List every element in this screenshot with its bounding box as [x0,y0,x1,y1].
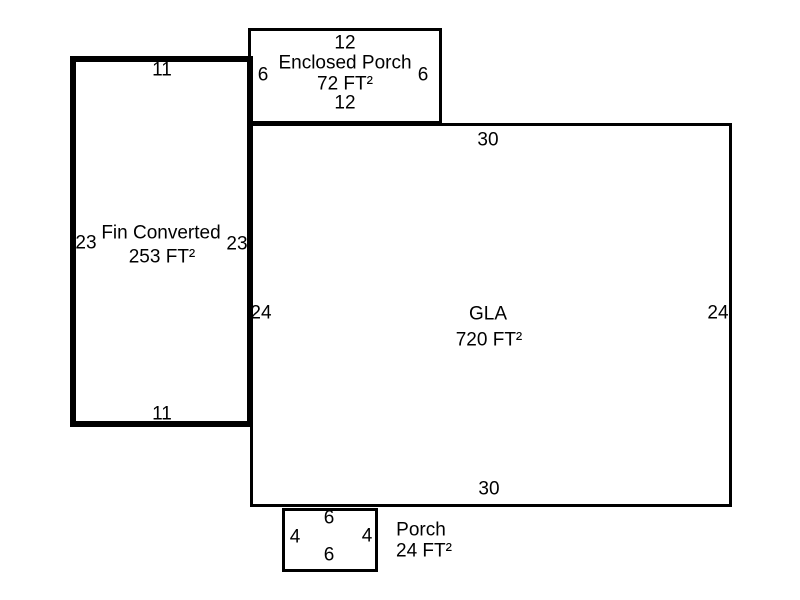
gla-dim-top: 30 [477,131,498,150]
porch-dim-left: 4 [290,528,301,547]
enclosed-porch-dim-bottom: 12 [334,94,355,113]
gla-dim-left: 24 [250,304,271,323]
enclosed-porch-area-label: 72 FT² [317,75,373,94]
gla-name-label: GLA [469,305,507,324]
fin-converted-area-label: 253 FT² [129,248,196,267]
fin-converted-dim-bottom: 11 [152,405,172,424]
gla-area-label: 720 FT² [456,331,523,350]
gla-dim-right: 24 [707,304,728,323]
gla-dim-bottom: 30 [478,480,499,499]
fin-converted-dim-top: 11 [152,61,172,80]
enclosed-porch-name-label: Enclosed Porch [278,54,411,73]
porch-name-label: Porch [396,521,446,540]
fin-converted-dim-right: 23 [226,235,247,254]
enclosed-porch-dim-left: 6 [258,66,269,85]
fin-converted-dim-left: 23 [75,234,96,253]
porch-dim-bottom: 6 [324,546,335,565]
enclosed-porch-dim-right: 6 [418,66,429,85]
porch-area-label: 24 FT² [396,542,452,561]
fin-converted-name-label: Fin Converted [101,224,220,243]
porch-dim-top: 6 [324,509,335,528]
floor-plan-canvas: 12 Enclosed Porch 72 FT² 12 6 6 11 Fin C… [0,0,800,600]
porch-dim-right: 4 [362,527,373,546]
enclosed-porch-dim-top: 12 [334,34,355,53]
